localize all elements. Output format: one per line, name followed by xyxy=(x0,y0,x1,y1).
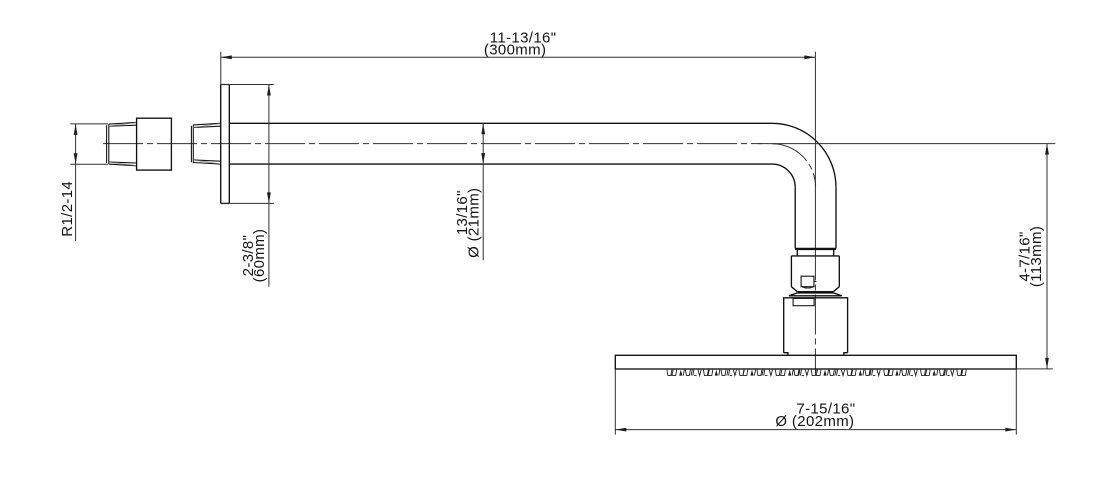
svg-text:(60mm): (60mm) xyxy=(251,229,268,283)
svg-text:(113mm): (113mm) xyxy=(1028,226,1045,287)
svg-text:Ø (202mm): Ø (202mm) xyxy=(775,413,854,430)
svg-text:(300mm): (300mm) xyxy=(484,42,546,59)
svg-text:Ø (21mm): Ø (21mm) xyxy=(465,188,482,258)
svg-text:R1/2-14: R1/2-14 xyxy=(59,181,76,237)
